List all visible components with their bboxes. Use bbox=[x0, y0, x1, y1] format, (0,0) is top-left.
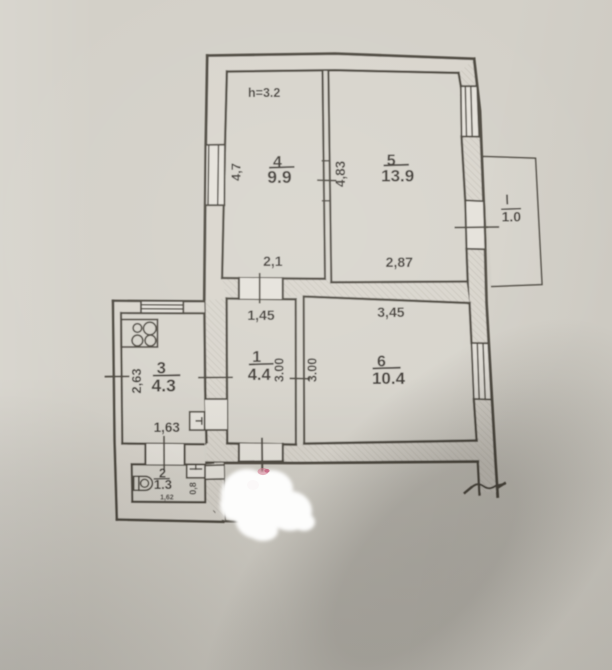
svg-text:h=3.2: h=3.2 bbox=[248, 86, 280, 100]
svg-text:13.9: 13.9 bbox=[381, 167, 414, 186]
svg-text:5: 5 bbox=[387, 152, 396, 169]
svg-text:4: 4 bbox=[273, 154, 282, 171]
svg-text:1,62: 1,62 bbox=[160, 495, 174, 502]
svg-text:3,45: 3,45 bbox=[377, 304, 404, 320]
svg-text:4,7: 4,7 bbox=[229, 163, 244, 181]
svg-text:2: 2 bbox=[159, 467, 166, 481]
svg-text:1,45: 1,45 bbox=[247, 307, 274, 323]
svg-text:3.00: 3.00 bbox=[272, 358, 286, 382]
svg-text:4.4: 4.4 bbox=[248, 366, 272, 384]
svg-text:1.0: 1.0 bbox=[502, 209, 522, 225]
svg-text:2,63: 2,63 bbox=[129, 368, 144, 393]
svg-text:4.3: 4.3 bbox=[152, 376, 177, 396]
svg-text:1.3: 1.3 bbox=[154, 477, 172, 492]
svg-text:4,83: 4,83 bbox=[333, 160, 348, 187]
svg-text:1: 1 bbox=[252, 349, 261, 366]
svg-text:2,1: 2,1 bbox=[263, 253, 283, 269]
svg-text:0,8: 0,8 bbox=[188, 482, 198, 495]
svg-text:1,63: 1,63 bbox=[154, 420, 181, 435]
svg-text:3.00: 3.00 bbox=[305, 358, 319, 382]
svg-text:6: 6 bbox=[377, 353, 386, 370]
svg-text:3: 3 bbox=[157, 360, 166, 378]
svg-text:9.9: 9.9 bbox=[267, 167, 292, 187]
svg-text:2,87: 2,87 bbox=[386, 254, 413, 270]
svg-text:10.4: 10.4 bbox=[372, 369, 406, 388]
